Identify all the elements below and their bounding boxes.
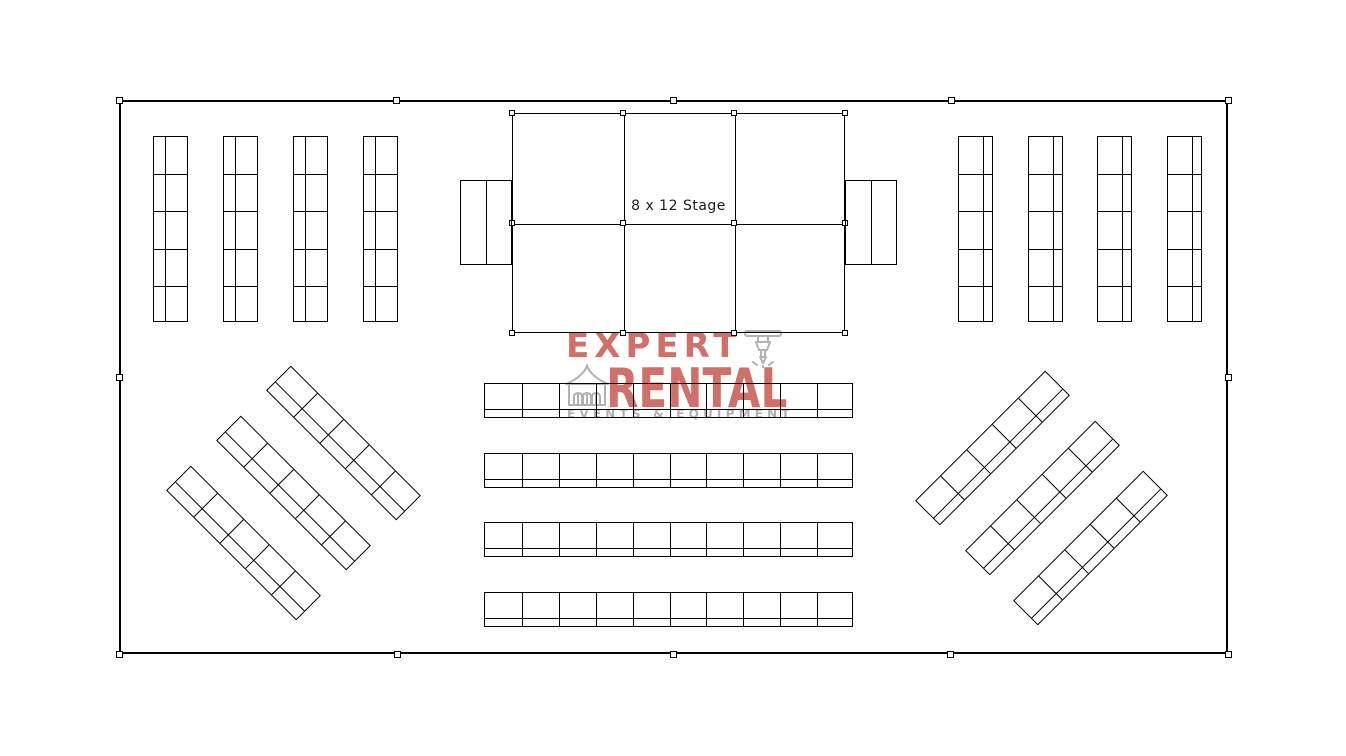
stage-joint-marker <box>842 110 848 116</box>
stage-joint-marker <box>620 330 626 336</box>
table-segment-divider <box>224 174 257 175</box>
stage-joint-marker <box>731 220 737 226</box>
table-segment-divider <box>633 454 634 487</box>
table-segment-divider <box>154 249 187 250</box>
chair-row-line <box>485 479 852 480</box>
table-segment-divider <box>294 286 327 287</box>
banquet-table-right-column <box>1097 136 1132 322</box>
table-segment-divider <box>1168 286 1201 287</box>
table-segment-divider <box>959 174 992 175</box>
table-segment-divider <box>1068 448 1092 472</box>
table-segment-divider <box>780 593 781 626</box>
banquet-table-center-row <box>484 453 853 488</box>
table-segment-divider <box>1098 249 1131 250</box>
table-segment-divider <box>224 286 257 287</box>
tent-pole-marker <box>1225 374 1232 381</box>
table-segment-divider <box>1016 500 1040 524</box>
table-segment-divider <box>559 593 560 626</box>
stage-joint-marker <box>842 330 848 336</box>
stage-step-divider <box>486 181 487 264</box>
table-segment-divider <box>780 523 781 556</box>
tent-pole-marker <box>116 374 123 381</box>
stage-step <box>845 180 897 265</box>
table-segment-divider <box>559 384 560 417</box>
table-segment-divider <box>670 523 671 556</box>
table-segment-divider <box>743 593 744 626</box>
chair-row-line <box>235 137 236 321</box>
table-segment-divider <box>743 523 744 556</box>
table-segment-divider <box>670 384 671 417</box>
banquet-table-left-column <box>363 136 398 322</box>
table-segment-divider <box>633 593 634 626</box>
stage-joint-marker <box>509 330 515 336</box>
table-segment-divider <box>959 211 992 212</box>
table-segment-divider <box>364 286 397 287</box>
banquet-table-left-column <box>223 136 258 322</box>
chair-row-line <box>485 548 852 549</box>
table-segment-divider <box>817 454 818 487</box>
table-segment-divider <box>559 523 560 556</box>
table-segment-divider <box>990 526 1014 550</box>
table-segment-divider <box>817 523 818 556</box>
tent-pole-marker <box>670 97 677 104</box>
table-segment-divider <box>1064 550 1088 574</box>
table-segment-divider <box>780 384 781 417</box>
tent-pole-marker <box>394 651 401 658</box>
table-segment-divider <box>633 523 634 556</box>
tent-pole-marker <box>393 97 400 104</box>
table-segment-divider <box>940 476 964 500</box>
banquet-table-left-column <box>293 136 328 322</box>
table-segment-divider <box>817 384 818 417</box>
chair-row-line <box>1192 137 1193 321</box>
table-segment-divider <box>743 384 744 417</box>
table-segment-divider <box>1098 286 1131 287</box>
table-segment-divider <box>364 174 397 175</box>
stage-step-divider <box>871 181 872 264</box>
table-segment-divider <box>670 593 671 626</box>
table-segment-divider <box>294 249 327 250</box>
tent-pole-marker <box>116 97 123 104</box>
table-segment-divider <box>364 211 397 212</box>
banquet-table-center-row <box>484 522 853 557</box>
banquet-table-right-column <box>1167 136 1202 322</box>
table-segment-divider <box>1116 498 1140 522</box>
table-segment-divider <box>596 593 597 626</box>
table-segment-divider <box>364 249 397 250</box>
stage-joint-marker <box>731 110 737 116</box>
table-segment-divider <box>1038 576 1062 600</box>
table-segment-divider <box>817 593 818 626</box>
table-segment-divider <box>522 523 523 556</box>
table-segment-divider <box>992 424 1016 448</box>
table-segment-divider <box>1168 249 1201 250</box>
table-segment-divider <box>1029 174 1062 175</box>
table-segment-divider <box>1168 211 1201 212</box>
banquet-table-left-column <box>153 136 188 322</box>
banquet-table-right-column <box>958 136 993 322</box>
table-segment-divider <box>522 454 523 487</box>
stage-joint-marker <box>731 330 737 336</box>
tent-pole-marker <box>948 97 955 104</box>
table-segment-divider <box>706 454 707 487</box>
table-segment-divider <box>1098 174 1131 175</box>
table-segment-divider <box>154 286 187 287</box>
table-segment-divider <box>596 454 597 487</box>
table-segment-divider <box>706 593 707 626</box>
table-segment-divider <box>154 174 187 175</box>
banquet-table-right-column <box>1028 136 1063 322</box>
stage-joint-marker <box>509 110 515 116</box>
table-segment-divider <box>706 523 707 556</box>
floor-plan-canvas: EXPERT RENTAL EVENTS & EQUIPMENT <box>0 0 1346 756</box>
table-segment-divider <box>596 384 597 417</box>
tent-pole-marker <box>1225 97 1232 104</box>
table-segment-divider <box>1042 474 1066 498</box>
table-segment-divider <box>224 211 257 212</box>
table-segment-divider <box>294 211 327 212</box>
table-segment-divider <box>1098 211 1131 212</box>
stage-joint-marker <box>620 220 626 226</box>
table-segment-divider <box>959 249 992 250</box>
chair-row-line <box>1122 137 1123 321</box>
table-segment-divider <box>633 384 634 417</box>
chair-row-line <box>485 409 852 410</box>
table-segment-divider <box>522 593 523 626</box>
table-segment-divider <box>1018 398 1042 422</box>
banquet-table-center-row <box>484 383 853 418</box>
chair-row-line <box>165 137 166 321</box>
stage-panel-divider <box>513 224 844 225</box>
table-segment-divider <box>559 454 560 487</box>
table-segment-divider <box>1029 249 1062 250</box>
stage-joint-marker <box>620 110 626 116</box>
table-segment-divider <box>743 454 744 487</box>
table-segment-divider <box>294 174 327 175</box>
stage: 8 x 12 Stage <box>512 113 845 333</box>
table-segment-divider <box>706 384 707 417</box>
table-segment-divider <box>224 249 257 250</box>
stage-label: 8 x 12 Stage <box>513 198 844 214</box>
chair-row-line <box>1053 137 1054 321</box>
table-segment-divider <box>780 454 781 487</box>
stage-step <box>460 180 512 265</box>
table-segment-divider <box>596 523 597 556</box>
table-segment-divider <box>1029 211 1062 212</box>
table-segment-divider <box>154 211 187 212</box>
table-segment-divider <box>522 384 523 417</box>
tent-pole-marker <box>116 651 123 658</box>
chair-row-line <box>375 137 376 321</box>
tent-pole-marker <box>1225 651 1232 658</box>
table-segment-divider <box>959 286 992 287</box>
chair-row-line <box>485 618 852 619</box>
banquet-table-center-row <box>484 592 853 627</box>
chair-row-line <box>983 137 984 321</box>
table-segment-divider <box>966 450 990 474</box>
tent-pole-marker <box>670 651 677 658</box>
table-segment-divider <box>1168 174 1201 175</box>
tent-pole-marker <box>947 651 954 658</box>
table-segment-divider <box>1090 524 1114 548</box>
table-segment-divider <box>1029 286 1062 287</box>
chair-row-line <box>305 137 306 321</box>
table-segment-divider <box>670 454 671 487</box>
